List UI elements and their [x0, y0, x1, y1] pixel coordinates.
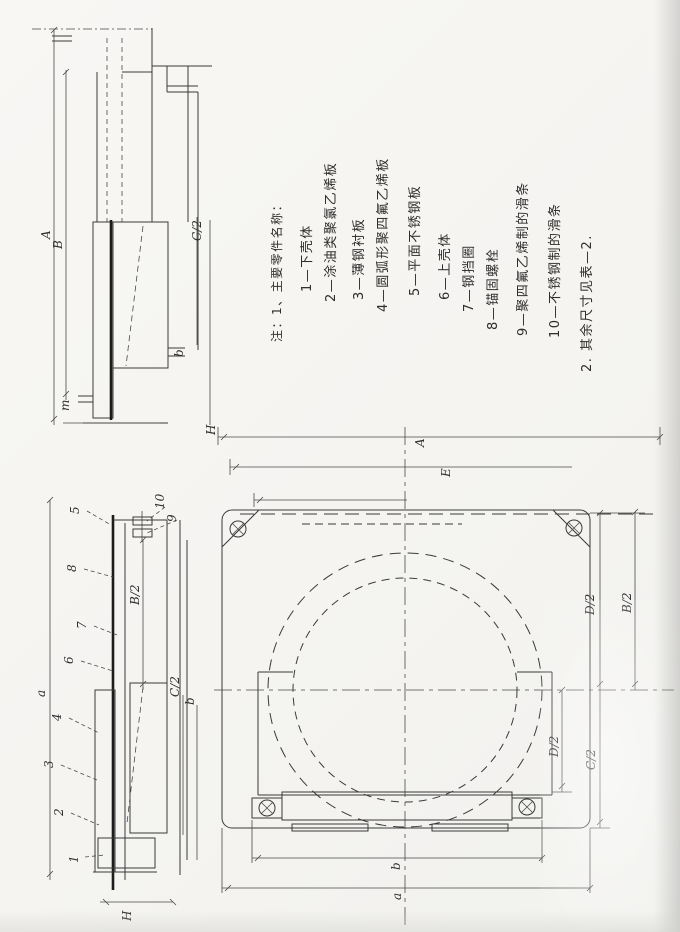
- hatched-section-blocks: [93, 683, 167, 872]
- callout-2: 2: [52, 808, 66, 817]
- dim-label-b: b: [389, 862, 403, 870]
- dimension-lines: [47, 497, 197, 905]
- parts-list-item-3: 3—薄钢衬板: [348, 218, 367, 300]
- dim-label-C-half: C/2: [190, 220, 204, 241]
- parts-list-item-4: 4—圆弧形聚四氟乙烯板: [372, 157, 391, 312]
- parts-list-item-2: 2—涂油类聚氯乙烯板: [320, 162, 339, 302]
- parts-list-item-5: 5—平面不锈钢板: [404, 185, 423, 296]
- dim-label-B-half: B/2: [128, 585, 142, 607]
- dim-label-a: a: [390, 893, 404, 900]
- callout-7: 7: [75, 621, 89, 629]
- callout-6: 6: [62, 656, 76, 664]
- parts-list-item-9: 9—聚四氟乙烯制的滑条: [512, 181, 531, 336]
- parts-list-item-10: 10—不锈钢制的滑条: [544, 202, 563, 338]
- dim-label-a: a: [34, 690, 48, 697]
- dim-label-b: b: [172, 349, 186, 357]
- scanned-drawing-page: A B C/2 b m H: [0, 0, 680, 932]
- parts-list-item-7: 7—钢挡圈: [458, 244, 477, 312]
- dim-label-A: A: [39, 230, 53, 240]
- dim-label-C-half: C/2: [168, 676, 182, 697]
- dim-label-m: m: [58, 400, 72, 411]
- lower-flanges: [78, 348, 185, 423]
- dim-label-B: B: [51, 240, 65, 250]
- callout-numbers: 5 10 9 8 7 6 4 3 2 1: [42, 493, 179, 863]
- top-dimension-lines: [218, 427, 663, 507]
- callout-1: 1: [67, 855, 81, 863]
- bottom-dimension-lines: [222, 820, 593, 893]
- upper-plates-outline: [52, 28, 212, 350]
- callout-leaders: [61, 507, 177, 857]
- callout-9: 9: [165, 514, 179, 522]
- side-view-section-bottom: 5 10 9 8 7 6 4 3 2 1 a B/2 C/2 b H: [35, 465, 215, 930]
- dim-label-b: b: [183, 697, 197, 705]
- parts-list-item-6: 6—上壳体: [434, 232, 453, 300]
- parts-list-item-1: 1—下壳体: [296, 224, 315, 292]
- callout-3: 3: [42, 760, 56, 768]
- bolt-bottom-right: [519, 799, 535, 815]
- callout-5: 5: [68, 506, 82, 514]
- bolt-bottom-left: [259, 800, 275, 816]
- callout-8: 8: [65, 564, 79, 572]
- bolt-top-right: [566, 520, 582, 536]
- parts-list-item-8: 8—锚固螺栓: [482, 248, 501, 330]
- dim-label-A: A: [413, 438, 427, 448]
- scan-smudge: [540, 600, 680, 930]
- side-view-section-top: A B C/2 b m H: [25, 5, 240, 450]
- dim-label-E: E: [439, 468, 453, 478]
- callout-10: 10: [153, 493, 167, 509]
- parts-list-footer: 2. 其余尺寸见表—2.: [576, 234, 595, 372]
- parts-list-header: 注：1、主要零件名称：: [268, 198, 285, 342]
- dimension-lines: [51, 27, 210, 425]
- hatched-section-blocks: [93, 220, 168, 420]
- callout-4: 4: [50, 713, 64, 722]
- bolt-top-left: [230, 521, 246, 537]
- scan-bottom-shadow: [0, 910, 680, 932]
